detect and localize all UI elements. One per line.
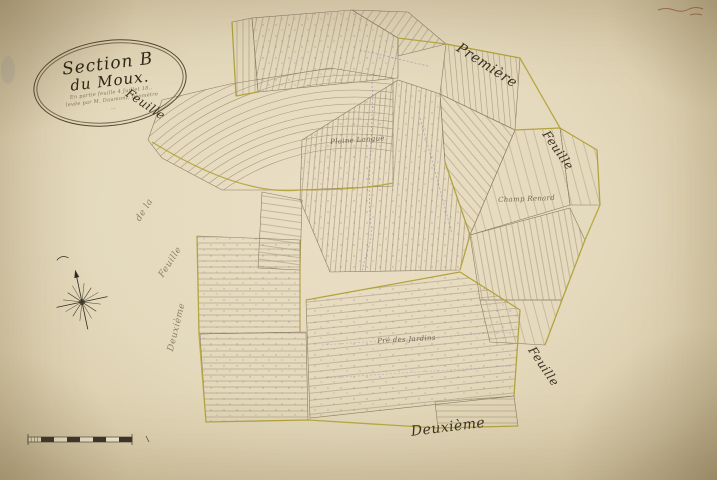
cartouche-note-3: … (110, 104, 116, 112)
archival-mark (658, 8, 703, 16)
ink-smudge (1, 56, 15, 84)
map-sheet: Section B du Moux. En partie feuille 4 J… (0, 0, 717, 480)
scale-bar (28, 434, 149, 445)
compass-rose (46, 249, 113, 335)
